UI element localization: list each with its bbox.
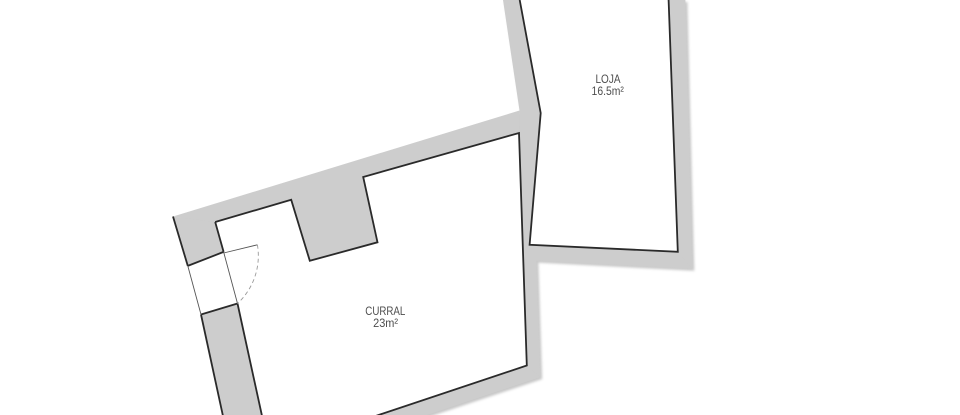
svg-text:16.5m²: 16.5m² xyxy=(592,84,624,98)
svg-text:23m²: 23m² xyxy=(373,316,398,330)
